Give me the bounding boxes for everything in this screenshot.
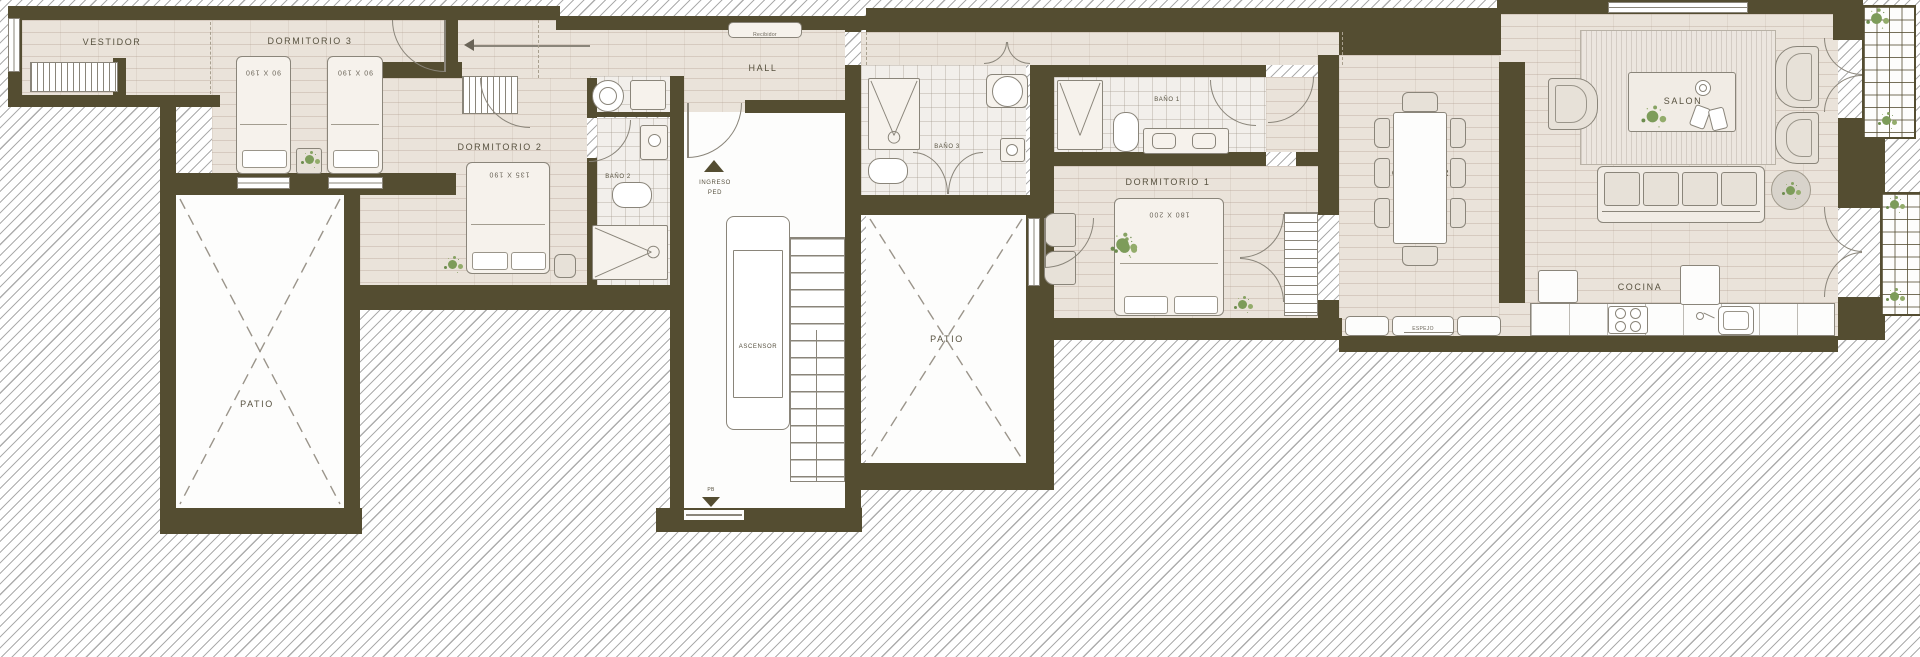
dormitorio1-label: DORMITORIO 1 — [1125, 177, 1210, 187]
window — [237, 177, 290, 189]
level-label: PB — [707, 487, 714, 493]
dining-chair — [1402, 246, 1438, 266]
window — [8, 18, 20, 72]
wall-segment — [1838, 297, 1885, 340]
bed-size-label: 180 X 200 — [1149, 211, 1190, 218]
bed-size-label: 90 X 190 — [337, 69, 373, 76]
patio-izq-label: PATIO — [240, 399, 274, 409]
pillow — [472, 252, 508, 270]
burner-icon — [1615, 308, 1626, 319]
armchair — [1775, 46, 1819, 108]
wall-segment — [556, 16, 868, 30]
threshold-dashed — [1342, 32, 1343, 65]
burner-icon — [1630, 308, 1641, 319]
ingreso-label-2: PED — [708, 190, 722, 196]
recibidor-label: Recibidor — [753, 32, 777, 38]
washing-machine-drum — [599, 87, 617, 105]
decor-dish — [1699, 84, 1707, 92]
wall-segment — [445, 16, 458, 64]
vestidor-label: VESTIDOR — [83, 37, 142, 47]
armchair — [1548, 78, 1598, 130]
plant-icon — [1882, 116, 1891, 125]
shower — [868, 78, 920, 150]
sink-basin — [1192, 133, 1216, 149]
dining-chair — [1374, 118, 1390, 148]
wall-segment — [1499, 62, 1525, 303]
threshold-dashed — [538, 20, 539, 78]
direction-arrow-line — [474, 45, 590, 47]
pillow — [333, 150, 379, 168]
sofa — [1597, 166, 1765, 223]
chair — [554, 254, 576, 278]
dining-chair — [1450, 118, 1466, 148]
plant-icon — [448, 260, 457, 269]
dining-chair — [1402, 92, 1438, 112]
dining-table — [1393, 112, 1447, 244]
elevator-cab — [733, 250, 783, 398]
plant-icon — [305, 155, 314, 164]
closet-panel — [1457, 316, 1501, 336]
wardrobe-rail — [30, 62, 118, 92]
cabinet — [630, 80, 666, 110]
floorplan-canvas: 90 X 190 90 X 190 Recibidor HALL VESTIDO… — [0, 0, 1920, 657]
balcony-terrace — [1880, 192, 1920, 316]
plant-icon — [1786, 186, 1795, 195]
closet-panel — [1345, 316, 1389, 336]
wall-segment — [8, 95, 220, 107]
ingreso-label-1: INGRESO — [699, 180, 731, 186]
hall-label: HALL — [749, 63, 778, 73]
pillow — [242, 150, 287, 168]
ascensor-label: ASCENSOR — [739, 344, 777, 350]
plant-icon — [1890, 292, 1899, 301]
cocina-label: COCINA — [1618, 282, 1663, 292]
corridor2-floor — [861, 32, 1339, 65]
sink-basin — [648, 134, 661, 147]
bano3-label: BAÑO 3 — [934, 144, 960, 150]
patio-centro-label: PATIO — [930, 334, 964, 344]
toilet — [612, 182, 652, 208]
washing-machine-icon — [992, 76, 1023, 107]
stove — [1608, 306, 1648, 334]
burner-icon — [1630, 321, 1641, 332]
wall-segment — [745, 100, 845, 113]
shower — [1057, 80, 1103, 150]
wall-segment — [1030, 318, 1342, 340]
wall-segment — [160, 95, 176, 532]
bano1-label: BAÑO 1 — [1154, 97, 1180, 103]
window — [328, 177, 383, 189]
wall-segment — [1318, 55, 1339, 215]
wall-segment — [670, 76, 684, 508]
wall-segment — [1339, 8, 1501, 55]
recibidor-console: Recibidor — [728, 22, 802, 38]
dining-chair — [1374, 158, 1390, 188]
sink-basin — [1006, 144, 1018, 156]
door-leaf — [686, 514, 742, 516]
burner-icon — [1615, 321, 1626, 332]
dormitorio3-label: DORMITORIO 3 — [267, 36, 352, 46]
wall-segment — [852, 463, 1054, 490]
wall-zigzag-trim — [1052, 350, 1885, 358]
patio-cross-lines — [176, 195, 344, 508]
wall-segment — [1040, 152, 1266, 166]
bano2-label: BAÑO 2 — [605, 174, 631, 180]
closet-panel-mirror: ESPEJO — [1392, 316, 1454, 336]
kitchen-counter — [1530, 303, 1835, 336]
exit-arrow-icon — [702, 497, 720, 507]
bed-size-label: 90 X 190 — [245, 69, 281, 76]
threshold-dashed — [866, 32, 867, 65]
threshold-dashed — [210, 22, 211, 94]
wall-segment — [852, 195, 1040, 215]
door-leaf — [444, 20, 446, 72]
plant-icon — [1647, 111, 1659, 123]
entrance-arrow-icon — [704, 160, 724, 172]
wall-segment — [1030, 65, 1054, 195]
direction-arrow-head — [464, 39, 474, 51]
plant-icon — [1116, 238, 1129, 251]
dining-chair — [1374, 198, 1390, 228]
dining-chair — [1450, 198, 1466, 228]
plant-icon — [1890, 200, 1899, 209]
wall-segment — [176, 173, 456, 195]
wardrobe-shelves — [1284, 212, 1318, 316]
pillow — [1174, 296, 1218, 314]
wall-segment — [344, 285, 684, 310]
door-leaf — [1044, 218, 1046, 268]
stair-rail — [816, 330, 817, 482]
dormitorio2-label: DORMITORIO 2 — [457, 142, 542, 152]
pillow — [1124, 296, 1168, 314]
kitchen-cabinet — [1538, 270, 1578, 303]
wall-segment — [866, 8, 1341, 32]
bed-size-label: 135 X 190 — [489, 171, 530, 178]
wall-segment — [1833, 0, 1863, 40]
wall-segment — [845, 65, 861, 508]
armchair — [1775, 112, 1819, 164]
wall-segment — [590, 112, 670, 117]
wall-segment — [160, 508, 362, 534]
wall-segment — [845, 16, 861, 32]
toilet — [868, 158, 908, 184]
kitchen-island — [1680, 265, 1720, 305]
kitchen-sink — [1718, 306, 1754, 335]
toilet — [1113, 112, 1139, 152]
wall-segment — [8, 6, 560, 20]
wall-segment — [1054, 65, 1266, 77]
window — [1608, 2, 1748, 13]
dining-chair — [1450, 158, 1466, 188]
shower — [592, 225, 668, 280]
door-leaf — [687, 103, 689, 158]
staircase — [790, 237, 845, 482]
plant-icon — [1871, 13, 1882, 24]
sink-basin — [1152, 133, 1176, 149]
window — [1028, 218, 1040, 286]
pillow — [511, 252, 546, 270]
wall-segment — [1030, 8, 1054, 32]
